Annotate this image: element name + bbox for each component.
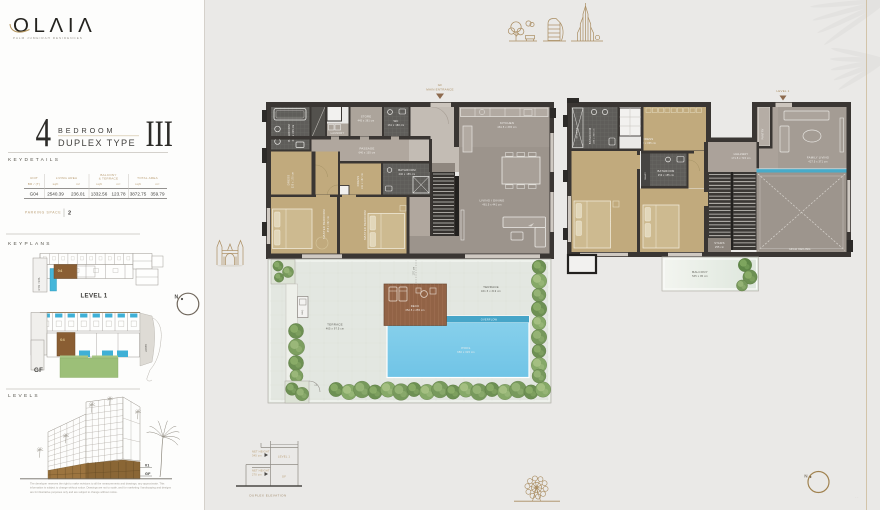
svg-text:LAUNDRY: LAUNDRY xyxy=(331,131,345,135)
svg-text:141 x 167 cm: 141 x 167 cm xyxy=(362,173,364,189)
svg-text:HALLWAY: HALLWAY xyxy=(734,152,749,156)
svg-text:FAMILY LIVING: FAMILY LIVING xyxy=(807,156,829,160)
svg-text:OVERFLOW: OVERFLOW xyxy=(481,318,498,322)
svg-text:DRESS: DRESS xyxy=(287,175,291,186)
svg-text:NET HEIGHT: NET HEIGHT xyxy=(252,450,270,454)
svg-text:are for illustrative purposes: are for illustrative purposes only and a… xyxy=(30,490,118,494)
svg-text:The developer reserves the rig: The developer reserves the right to make… xyxy=(30,482,165,486)
svg-text:sqft: sqft xyxy=(53,182,59,186)
svg-text:SHOWER: SHOWER xyxy=(577,127,579,138)
svg-text:161 x 180 cm: 161 x 180 cm xyxy=(388,124,405,127)
svg-text:GF: GF xyxy=(438,83,443,87)
svg-text:481.5 x 441 cm: 481.5 x 441 cm xyxy=(482,203,501,206)
svg-text:WC: WC xyxy=(393,119,398,123)
svg-text:2: 2 xyxy=(68,211,71,217)
svg-text:650 x 315 cm: 650 x 315 cm xyxy=(457,351,474,354)
svg-text:G04: G04 xyxy=(30,191,39,196)
svg-text:LEVEL 1: LEVEL 1 xyxy=(278,455,291,459)
svg-text:352.5 x 255 cm: 352.5 x 255 cm xyxy=(405,309,424,312)
svg-text:GF: GF xyxy=(282,475,286,479)
svg-text:270 cm: 270 cm xyxy=(252,473,262,477)
svg-text:OLΛIΛ: OLΛIΛ xyxy=(13,14,96,37)
svg-text:170 cm: 170 cm xyxy=(413,267,415,276)
svg-text:250 x 155 cm: 250 x 155 cm xyxy=(658,175,674,177)
svg-text:PARKING SPACE: PARKING SPACE xyxy=(25,211,61,215)
svg-text:236.01: 236.01 xyxy=(71,191,85,196)
svg-text:NET HEIGHT: NET HEIGHT xyxy=(252,469,270,473)
svg-text:m²: m² xyxy=(116,182,120,186)
svg-text:255 cm: 255 cm xyxy=(715,246,724,249)
svg-text:KEYPLANS: KEYPLANS xyxy=(8,241,52,247)
svg-text:GF: GF xyxy=(145,472,151,476)
svg-text:481.5 x 335 cm: 481.5 x 335 cm xyxy=(497,126,516,129)
svg-text:345 cm: 345 cm xyxy=(252,454,262,458)
svg-text:04: 04 xyxy=(60,337,65,342)
svg-text:427.5 x 371 cm: 427.5 x 371 cm xyxy=(808,160,827,163)
svg-text:GF: GF xyxy=(34,367,43,374)
svg-text:4: 4 xyxy=(36,110,52,155)
svg-text:& TERRACE: & TERRACE xyxy=(99,177,118,181)
svg-text:TOTAL AREA: TOTAL AREA xyxy=(137,176,158,180)
svg-text:POOL: POOL xyxy=(461,346,470,350)
svg-text:01: 01 xyxy=(145,464,150,468)
svg-text:m²: m² xyxy=(155,182,159,186)
svg-text:BALCONY: BALCONY xyxy=(692,270,708,274)
svg-text:445 x 361 cm: 445 x 361 cm xyxy=(358,119,375,122)
svg-text:225 x 360 cm: 225 x 360 cm xyxy=(594,128,596,144)
svg-text:. .: . . xyxy=(855,495,858,499)
svg-text:HIGH CEILING: HIGH CEILING xyxy=(789,247,810,251)
svg-text:BATHROOM: BATHROOM xyxy=(398,168,416,172)
svg-text:BATHROOM: BATHROOM xyxy=(658,169,675,173)
svg-text:DUPLEX TYPE: DUPLEX TYPE xyxy=(58,138,136,148)
svg-text:PASSAGE: PASSAGE xyxy=(359,147,374,151)
svg-text:DRESS: DRESS xyxy=(356,176,360,187)
svg-text:DRESS: DRESS xyxy=(643,137,654,141)
svg-text:PANTRY: PANTRY xyxy=(762,128,765,139)
svg-text:DECK: DECK xyxy=(411,304,420,308)
svg-text:240 x 155 cm: 240 x 155 cm xyxy=(399,173,416,176)
svg-text:MASTER BEDROOM: MASTER BEDROOM xyxy=(363,210,367,240)
svg-text:359.79: 359.79 xyxy=(150,191,164,196)
svg-text:465 x 97.5 cm: 465 x 97.5 cm xyxy=(326,328,344,331)
svg-text:MAIN ENTRANCE: MAIN ENTRANCE xyxy=(426,88,453,92)
svg-text:UNIT: UNIT xyxy=(30,176,38,180)
svg-text:KITCHEN: KITCHEN xyxy=(500,121,514,125)
svg-text:535 x 95 cm: 535 x 95 cm xyxy=(692,275,708,278)
svg-text:04: 04 xyxy=(58,268,63,273)
svg-text:BATHROOM: BATHROOM xyxy=(588,128,592,144)
svg-text:GYM / SPA: GYM / SPA xyxy=(38,277,41,290)
svg-text:LEVEL 1: LEVEL 1 xyxy=(776,89,789,93)
svg-text:BEDROOM: BEDROOM xyxy=(58,126,115,135)
svg-text:123.78: 123.78 xyxy=(111,191,125,196)
svg-text:STORE: STORE xyxy=(361,115,372,119)
svg-text:N: N xyxy=(175,295,179,301)
svg-text:LEVELS: LEVELS xyxy=(8,393,40,399)
svg-text:sqft: sqft xyxy=(96,182,102,186)
svg-text:III: III xyxy=(146,114,173,155)
svg-text:2540.39: 2540.39 xyxy=(47,191,64,196)
svg-text:sqft: sqft xyxy=(135,182,141,186)
svg-text:PALM JUMEIRAH RESIDENCES: PALM JUMEIRAH RESIDENCES xyxy=(13,36,83,40)
svg-text:DUPLEX ELEVATION: DUPLEX ELEVATION xyxy=(249,494,286,498)
svg-text:BR / (T): BR / (T) xyxy=(28,182,40,186)
svg-text:LIVING AREA: LIVING AREA xyxy=(56,176,78,180)
svg-text:LEVEL 1: LEVEL 1 xyxy=(80,293,107,300)
svg-text:171.5 x 715 cm: 171.5 x 715 cm xyxy=(731,157,750,160)
svg-text:MASTER BEDROOM: MASTER BEDROOM xyxy=(322,209,326,239)
svg-text:1332.56: 1332.56 xyxy=(91,191,108,196)
svg-text:N: N xyxy=(804,474,808,479)
svg-text:3872.75: 3872.75 xyxy=(130,191,147,196)
svg-text:461.5 x 319 cm: 461.5 x 319 cm xyxy=(481,290,501,293)
svg-text:TERRACE: TERRACE xyxy=(327,323,343,327)
svg-text:TERRACE: TERRACE xyxy=(483,285,499,289)
svg-text:m²: m² xyxy=(76,182,80,186)
svg-text:information is subject to chan: information is subject to change without… xyxy=(30,486,172,490)
svg-text:KEYDETAILS: KEYDETAILS xyxy=(8,157,60,163)
svg-text:BBQ: BBQ xyxy=(302,309,304,314)
svg-text:225 x 170 cm: 225 x 170 cm xyxy=(292,172,294,188)
svg-text:455 x 367 cm: 455 x 367 cm xyxy=(328,216,330,232)
svg-text:640 x 135 cm: 640 x 135 cm xyxy=(359,152,376,155)
svg-text:STAIRS: STAIRS xyxy=(714,241,724,245)
svg-text:LIVING / DINING: LIVING / DINING xyxy=(479,199,505,203)
svg-text:LOBBY: LOBBY xyxy=(145,343,148,352)
svg-text:SHAFT: SHAFT xyxy=(644,172,647,180)
